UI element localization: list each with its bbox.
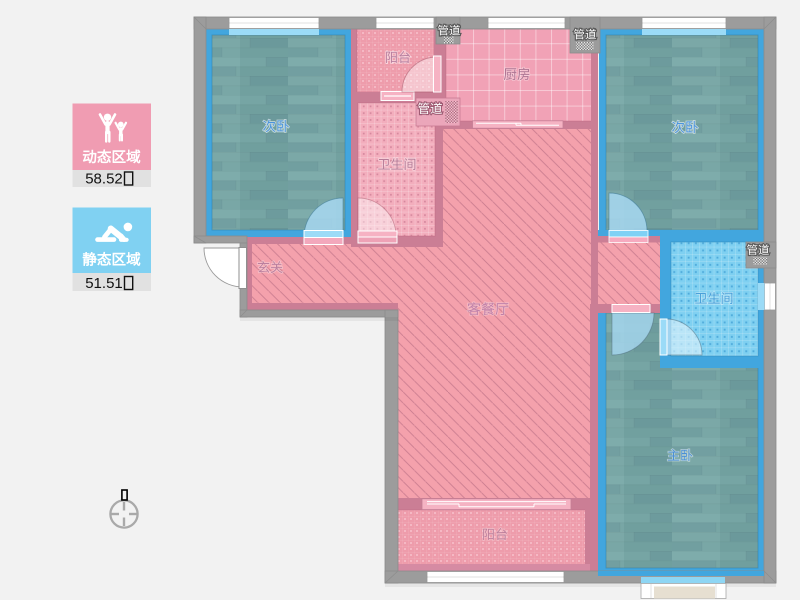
- svg-text:51.51: 51.51: [85, 275, 123, 292]
- svg-text:58.52: 58.52: [85, 171, 123, 188]
